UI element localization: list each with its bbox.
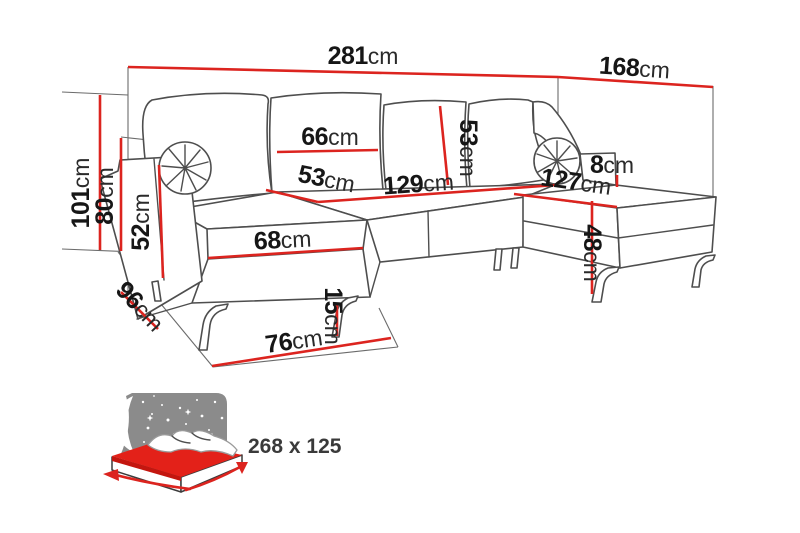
label-total-width: 281cm [328, 42, 399, 70]
label-total-depth: 168cm [598, 52, 671, 85]
star-dot [214, 401, 216, 403]
star-dot [221, 417, 224, 420]
star-dot [167, 419, 170, 422]
sofa-dimension-diagram: 281cm 168cm 101cm 80cm 52cm 66cm 53cm 53… [0, 0, 800, 533]
star-dot [143, 441, 145, 443]
star-dot [185, 423, 187, 425]
label-seat-height: 48cm [578, 224, 606, 281]
sleeping-area-size-label: 268 x 125 [248, 435, 342, 458]
star-dot [151, 413, 153, 415]
star-dot [153, 395, 155, 397]
label-leg-height: 15cm [319, 287, 347, 344]
label-armrest-above-seat: 8cm [590, 151, 634, 179]
middle-leg-2 [511, 248, 519, 268]
diagram-canvas: 281cm 168cm 101cm 80cm 52cm 66cm 53cm 53… [0, 0, 800, 533]
canvas-background [0, 0, 800, 533]
middle-seat-split-line [428, 211, 429, 257]
left-bolster-cushion [159, 142, 211, 194]
label-chaise-cushion-width: 68cm [253, 225, 312, 256]
label-back-cushion-height: 53cm [454, 119, 482, 176]
star-dot [201, 415, 204, 418]
star-dot [142, 401, 144, 403]
label-back-cushion-width: 66cm [301, 123, 358, 151]
star-dot [161, 404, 163, 406]
label-backrest-height: 80cm [91, 167, 119, 224]
star-dot [147, 427, 150, 430]
label-armrest-front-height: 52cm [127, 193, 155, 250]
middle-leg-1 [494, 249, 502, 270]
star-dot [208, 429, 210, 431]
star-dot [179, 407, 181, 409]
star-dot [196, 399, 198, 401]
